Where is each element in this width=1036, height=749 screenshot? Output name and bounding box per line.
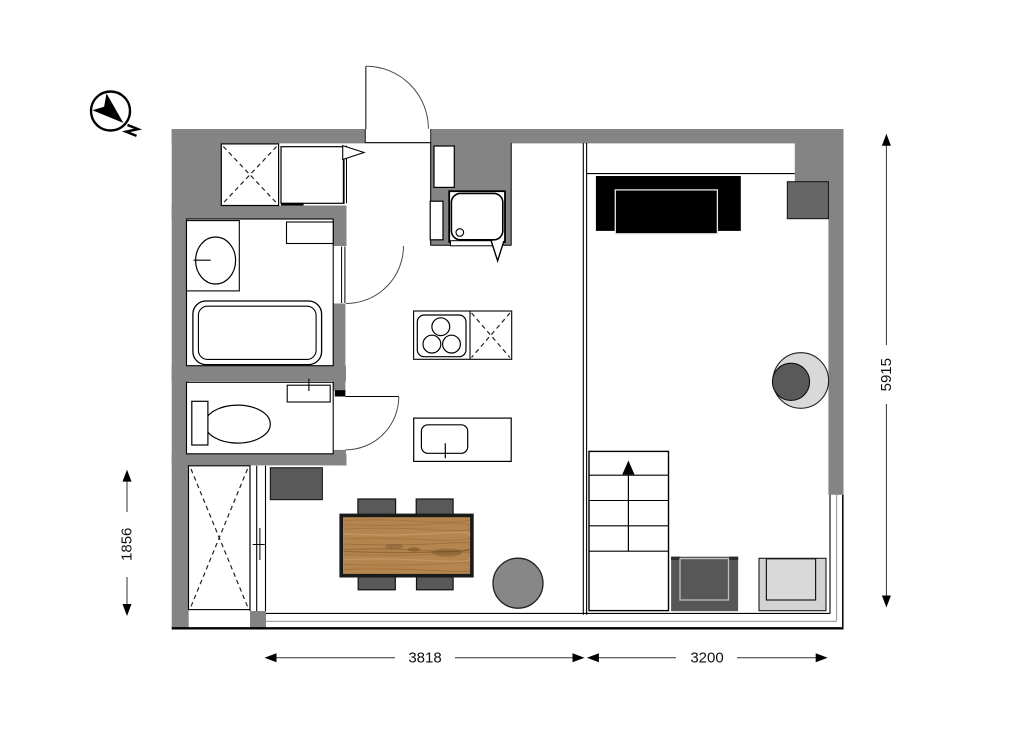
svg-text:3818: 3818	[408, 650, 441, 667]
svg-text:1856: 1856	[119, 528, 136, 561]
svg-text:5915: 5915	[878, 358, 895, 391]
svg-text:3200: 3200	[690, 650, 723, 667]
